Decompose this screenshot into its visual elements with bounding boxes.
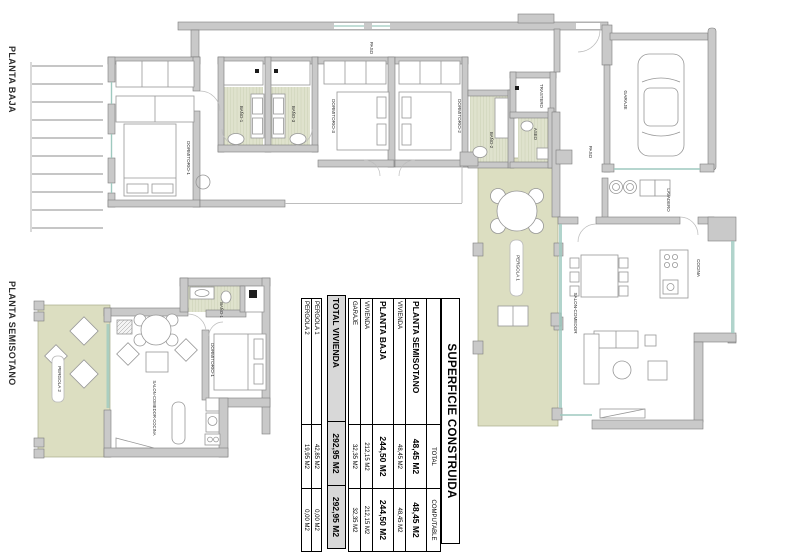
closet-dot-icon bbox=[515, 86, 519, 90]
row-total: 32,35 M2 bbox=[349, 425, 361, 489]
room-label-lavadero: LAVADERO bbox=[666, 188, 671, 212]
armchair-icon bbox=[648, 361, 667, 380]
room-label-cocina: COCINA bbox=[696, 259, 701, 278]
area-table-pergolas: PERGOLA 1 42,85 M2 0,00 M2 PERGOLA 2 19,… bbox=[301, 298, 322, 552]
room-label-sb-bano1: BAÑO-1 bbox=[219, 302, 224, 318]
pergola-row-computable: 0,00 M2 bbox=[312, 489, 322, 552]
windows-semisotano bbox=[107, 324, 110, 408]
area-table-total-row: TOTAL VIVIENDA 292,95 M2 292,95 M2 bbox=[327, 295, 346, 549]
row-label: VIVIENDA bbox=[361, 299, 373, 425]
row-computable: 48,45 M2 bbox=[394, 489, 406, 552]
dining-table-icon bbox=[134, 314, 178, 346]
room-label-dormitorio2: DORMITORIO-2 bbox=[457, 99, 462, 133]
closet-dot-icon bbox=[255, 69, 259, 73]
coffee-table-icon bbox=[613, 361, 631, 379]
header-computable: COMPUTABLE bbox=[427, 489, 441, 552]
room-label-sb-salon: SALON-COMEDOR-COCINA bbox=[152, 380, 157, 435]
total-total: 292,95 M2 bbox=[328, 422, 346, 486]
closet-dot-icon bbox=[274, 69, 278, 73]
sink-icon bbox=[208, 417, 217, 426]
room-label-paso-top: PASO bbox=[369, 42, 374, 55]
tv-cabinet-icon bbox=[117, 320, 132, 334]
room-label-salon-comedor: SALON-COMEDOR bbox=[573, 292, 578, 334]
tv-bench-icon bbox=[600, 409, 645, 418]
vanity-icon bbox=[495, 98, 508, 138]
area-table: SUPERFICIE CONSTRUIDA TOTAL COMPUTABLE P… bbox=[301, 298, 460, 544]
counter-icon bbox=[172, 402, 185, 444]
car-icon bbox=[638, 54, 684, 156]
room-label-trastero: TRASTERO bbox=[539, 84, 544, 108]
pergola-row-computable: 0,00 M2 bbox=[302, 489, 312, 552]
sofa-icon bbox=[584, 331, 667, 384]
side-table-icon bbox=[645, 335, 656, 346]
room-label-bano2: BAÑO-2 bbox=[489, 132, 494, 149]
pergola-slats-icon bbox=[31, 62, 103, 232]
room-label-pergola2: PERGOLA 2 bbox=[57, 366, 62, 392]
toilet-icon bbox=[221, 291, 231, 303]
row-total: 48,45 M2 bbox=[406, 425, 427, 489]
sink-icon bbox=[195, 290, 209, 297]
bed-icon bbox=[337, 92, 389, 150]
total-label: TOTAL VIVIENDA bbox=[328, 296, 346, 422]
wardrobe-icon bbox=[116, 61, 194, 122]
room-label-dormitorio3: DORMITORIO-3 bbox=[331, 99, 336, 133]
room-label-paso-entry: PASO bbox=[588, 146, 593, 159]
row-label: GARAJE bbox=[349, 299, 361, 425]
row-computable: 244,50 M2 bbox=[373, 489, 394, 552]
pergola-row-label: PERGOLA 2 bbox=[302, 299, 312, 425]
bed-icon bbox=[399, 92, 451, 150]
stairs-icon bbox=[116, 438, 154, 448]
room-label-bano1: BAÑO-1 bbox=[239, 106, 244, 123]
shower-head-icon bbox=[249, 290, 257, 298]
row-total: 48,45 M2 bbox=[394, 425, 406, 489]
row-label: VIVIENDA bbox=[394, 299, 406, 425]
room-label-pergola1: PERGOLA 1 bbox=[516, 255, 521, 281]
planta-semisotano-title: PLANTA SEMISOTANO bbox=[7, 281, 17, 386]
header-total: TOTAL bbox=[427, 425, 441, 489]
shower-icon bbox=[245, 286, 264, 312]
pergola-row-total: 19,95 M2 bbox=[302, 425, 312, 489]
armchair-icon bbox=[117, 343, 140, 366]
room-label-aseo: ASEO bbox=[533, 128, 538, 141]
row-computable: 32,35 M2 bbox=[349, 489, 361, 552]
row-total: 212,15 M2 bbox=[361, 425, 373, 489]
area-table-title: SUPERFICIE CONSTRUIDA bbox=[441, 298, 460, 544]
fridge-icon bbox=[206, 398, 219, 411]
row-label: PLANTA SEMISOTANO bbox=[406, 299, 427, 425]
coffee-table-icon bbox=[146, 352, 168, 372]
row-computable: 48,45 M2 bbox=[406, 489, 427, 552]
patio-table-icon bbox=[491, 189, 544, 234]
row-label: PLANTA BAJA bbox=[373, 299, 394, 425]
area-table-main: TOTAL COMPUTABLE PLANTA SEMISOTANO 48,45… bbox=[348, 298, 441, 552]
row-computable: 212,15 M2 bbox=[361, 489, 373, 552]
room-label-sb-dormitorio1: DORMITORIO-1 bbox=[210, 343, 215, 377]
toilet-icon bbox=[473, 147, 487, 158]
planta-semisotano-plan: PERGOLA 2 BAÑO-1 DORMITORIO-1 SALON-COME… bbox=[34, 278, 270, 458]
washer-icon bbox=[610, 181, 637, 194]
room-label-bano3: BAÑO-3 bbox=[291, 106, 296, 123]
toilet-icon bbox=[290, 134, 306, 145]
bed-icon bbox=[214, 334, 266, 390]
sink-icon bbox=[537, 148, 548, 159]
planta-baja-title: PLANTA BAJA bbox=[7, 46, 17, 113]
kitchen-island-icon bbox=[660, 250, 688, 298]
header-empty-cell bbox=[427, 299, 441, 425]
room-label-dormitorio1: DORMITORIO-1 bbox=[186, 141, 191, 175]
pergola-row-label: PERGOLA 1 bbox=[312, 299, 322, 425]
bench-icon bbox=[498, 306, 528, 326]
dining-table-icon bbox=[570, 255, 628, 297]
total-computable: 292,95 M2 bbox=[328, 486, 346, 549]
toilet-icon bbox=[228, 134, 244, 145]
pergola-row-total: 42,85 M2 bbox=[312, 425, 322, 489]
armchair-icon bbox=[175, 339, 198, 362]
toilet-icon bbox=[521, 121, 533, 131]
counter-icon bbox=[640, 180, 655, 196]
room-label-garaje: GARAJE bbox=[622, 90, 628, 109]
row-total: 244,50 M2 bbox=[373, 425, 394, 489]
floor-plan-sheet: PASO DORMITORIO-1 BAÑO-1 BAÑO-3 DORMITOR… bbox=[0, 0, 800, 552]
bed-icon bbox=[124, 124, 176, 196]
